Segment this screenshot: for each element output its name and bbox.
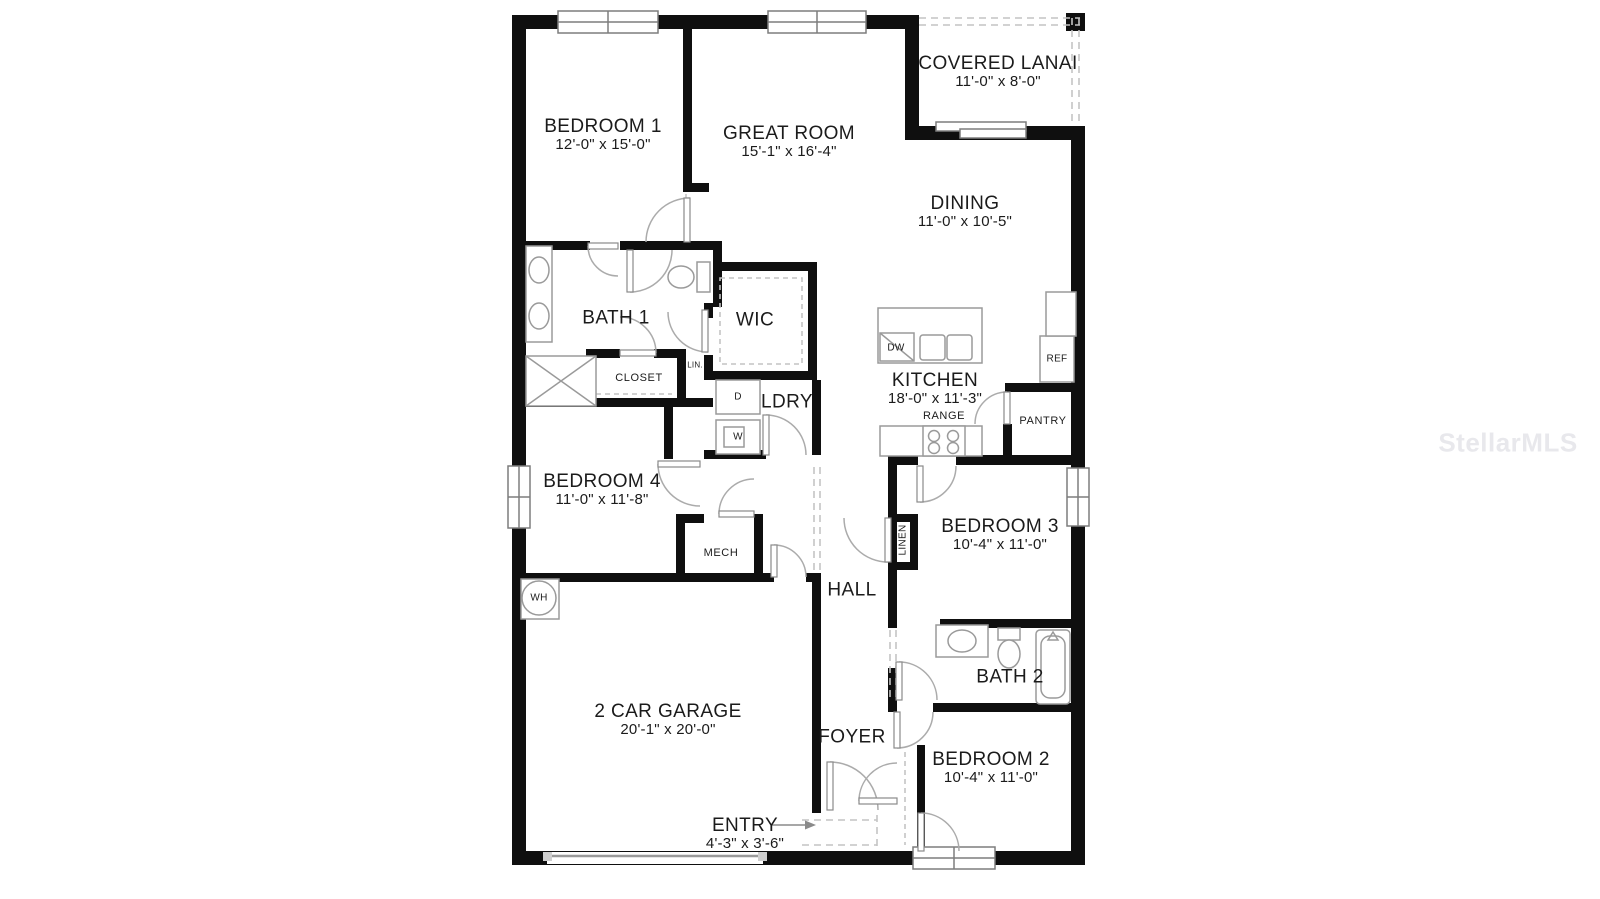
cabinet-above-fridge [1046,292,1076,336]
wall-lanai-left [905,15,919,140]
room-label-bedroom3: BEDROOM 3 10'-4" x 11'-0" [941,516,1059,554]
room-label-foyer: FOYER [818,726,885,747]
door-arc-water-closet [630,250,672,292]
room-label-bedroom2: BEDROOM 2 10'-4" x 11'-0" [932,749,1050,787]
room-label-ldry: LDRY [761,391,813,412]
window-bedroom1 [558,11,658,33]
label-closet: CLOSET [615,372,663,384]
door-arc-bedroom3 [920,466,956,502]
window-bedroom4 [508,466,530,528]
garage-door [543,852,767,864]
watermark: StellarMLS [1438,428,1577,459]
label-dishwasher: DW [887,342,904,353]
bath1-vanity [526,246,552,342]
room-label-kitchen: KITCHEN 18'-0" x 11'-3" [888,370,982,408]
floor-plan-canvas: BEDROOM 1 12'-0" x 15'-0" GREAT ROOM 15'… [0,0,1600,899]
door-arc-bath1 [588,246,618,276]
label-pantry: PANTRY [1019,415,1066,427]
room-label-bath1: BATH 1 [582,307,650,328]
label-range: RANGE [923,410,965,422]
door-arc-foyer-closet [859,763,897,801]
bath1-toilet [668,262,710,292]
kitchen-counter [880,426,982,456]
window-great-room [768,11,866,33]
room-label-covered-lanai: COVERED LANAI 11'-0" x 8'-0" [918,53,1077,91]
room-label-garage: 2 CAR GARAGE 20'-1" x 20'-0" [594,701,741,739]
bath2-toilet [998,628,1020,668]
bath2-vanity [936,625,988,657]
door-arc-bedroom4 [658,464,700,506]
room-label-dining: DINING 11'-0" x 10'-5" [918,193,1012,231]
door-arc-linen [844,518,888,562]
window-bedroom3 [1067,468,1089,526]
label-linen-small: LIN. [687,362,702,371]
kitchen-sink-right [947,335,972,360]
room-label-hall: HALL [827,579,876,600]
room-label-wic: WIC [736,309,774,330]
label-washer: W [733,431,743,442]
room-label-bedroom4: BEDROOM 4 11'-0" x 11'-8" [543,471,661,509]
label-dryer: D [734,391,742,402]
wall-left [512,15,526,865]
room-label-great-room: GREAT ROOM 15'-1" x 16'-4" [723,123,855,161]
door-arc-garage [774,545,806,577]
door-arc-bedroom2-closet [921,813,959,851]
door-arc-mech [719,479,754,514]
label-water-heater: WH [530,592,547,603]
room-label-entry: ENTRY 4'-3" x 3'-6" [706,815,784,853]
room-label-bedroom1: BEDROOM 1 12'-0" x 15'-0" [544,116,662,154]
door-arc-bedroom2 [897,712,933,748]
kitchen-island [878,308,982,363]
door-arc-bath2 [899,662,937,700]
kitchen-sink-left [920,335,945,360]
bath1-shower [526,356,596,406]
door-arc-ldry [766,415,806,455]
window-bedroom2 [913,847,995,869]
wall-lanai-corner [1066,13,1085,31]
label-mech: MECH [704,547,739,559]
room-label-bath2: BATH 2 [976,666,1044,687]
label-linen-closet: LINEN [897,525,908,556]
label-refrigerator: REF [1047,353,1068,364]
entry-door-leaf [827,762,833,810]
